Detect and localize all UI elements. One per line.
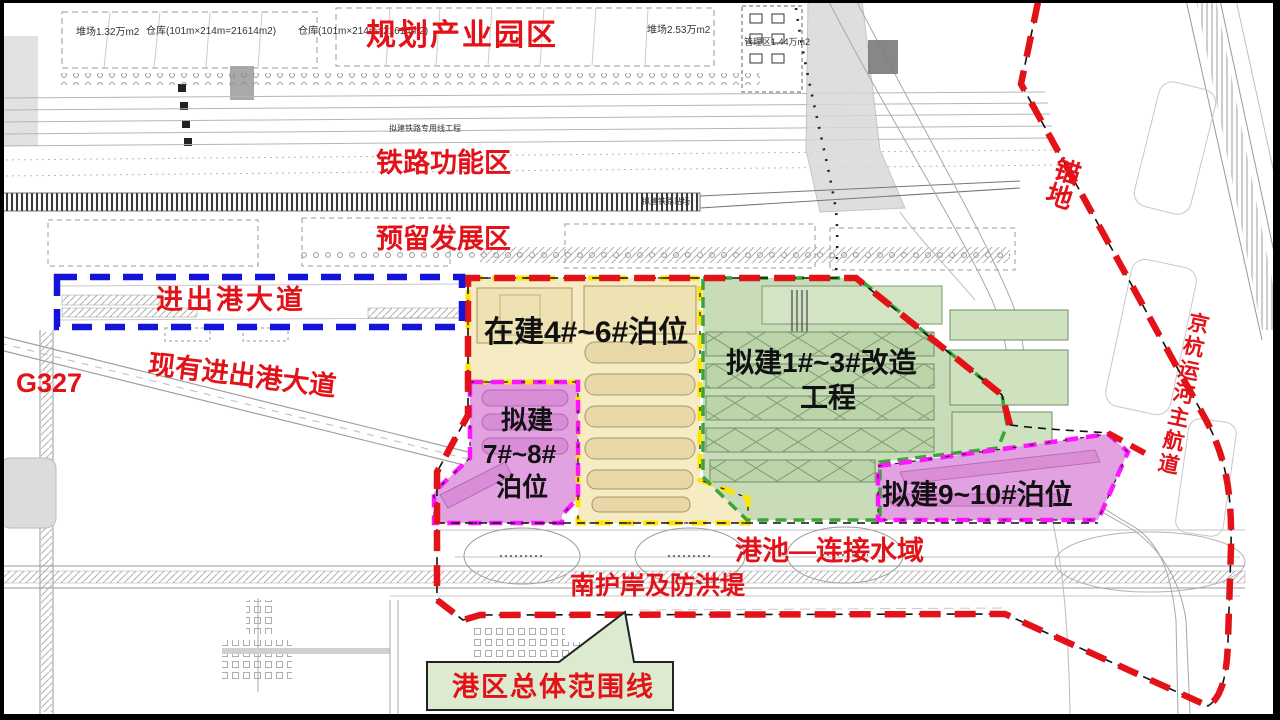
annotation-yard-right: 堆场2.53万m2 bbox=[647, 26, 710, 37]
label-berths-1-3-line1: 拟建1#~3#改造 bbox=[726, 348, 917, 377]
label-berths-7-8-line3: 泊位 bbox=[496, 474, 548, 501]
label-south-revetment-flood-dike: 南护岸及防洪堤 bbox=[570, 573, 745, 599]
annotation-warehouse-a: 仓库(101m×214m=21614m2) bbox=[146, 27, 276, 38]
frame-right bbox=[1273, 0, 1280, 720]
frame-bottom bbox=[0, 714, 1280, 720]
label-berths-7-8-line1: 拟建 bbox=[501, 407, 553, 434]
label-planned-industrial-park: 规划产业园区 bbox=[366, 20, 558, 52]
label-reserved-development-zone: 预留发展区 bbox=[376, 225, 511, 253]
label-railway-function-zone: 铁路功能区 bbox=[376, 149, 511, 177]
label-port-area-boundary: 港区总体范围线 bbox=[452, 673, 655, 701]
annotation-railway-yard: 拟建铁路站场 bbox=[642, 198, 690, 206]
frame-top bbox=[0, 0, 1280, 3]
frame-left bbox=[0, 0, 4, 720]
annotation-yard-left: 堆场1.32万m2 bbox=[76, 28, 139, 39]
annotation-railway-spur: 拟建铁路专用线工程 bbox=[389, 125, 461, 133]
label-port-access-avenue: 进出港大道 bbox=[156, 286, 306, 314]
label-g327: G327 bbox=[16, 369, 82, 397]
label-berths-1-3-line2: 工程 bbox=[800, 383, 856, 412]
port-master-plan-map: 堆场1.32万m2 仓库(101m×214m=21614m2) 仓库(101m×… bbox=[0, 0, 1280, 720]
label-berths-9-10: 拟建9~10#泊位 bbox=[882, 480, 1073, 509]
label-berths-4-6: 在建4#~6#泊位 bbox=[484, 317, 688, 349]
label-berths-7-8-line2: 7#~8# bbox=[483, 441, 556, 468]
annotation-management-area: 管理区1.44万m2 bbox=[744, 38, 810, 47]
label-basin-connecting-waters: 港池—连接水域 bbox=[735, 537, 924, 565]
